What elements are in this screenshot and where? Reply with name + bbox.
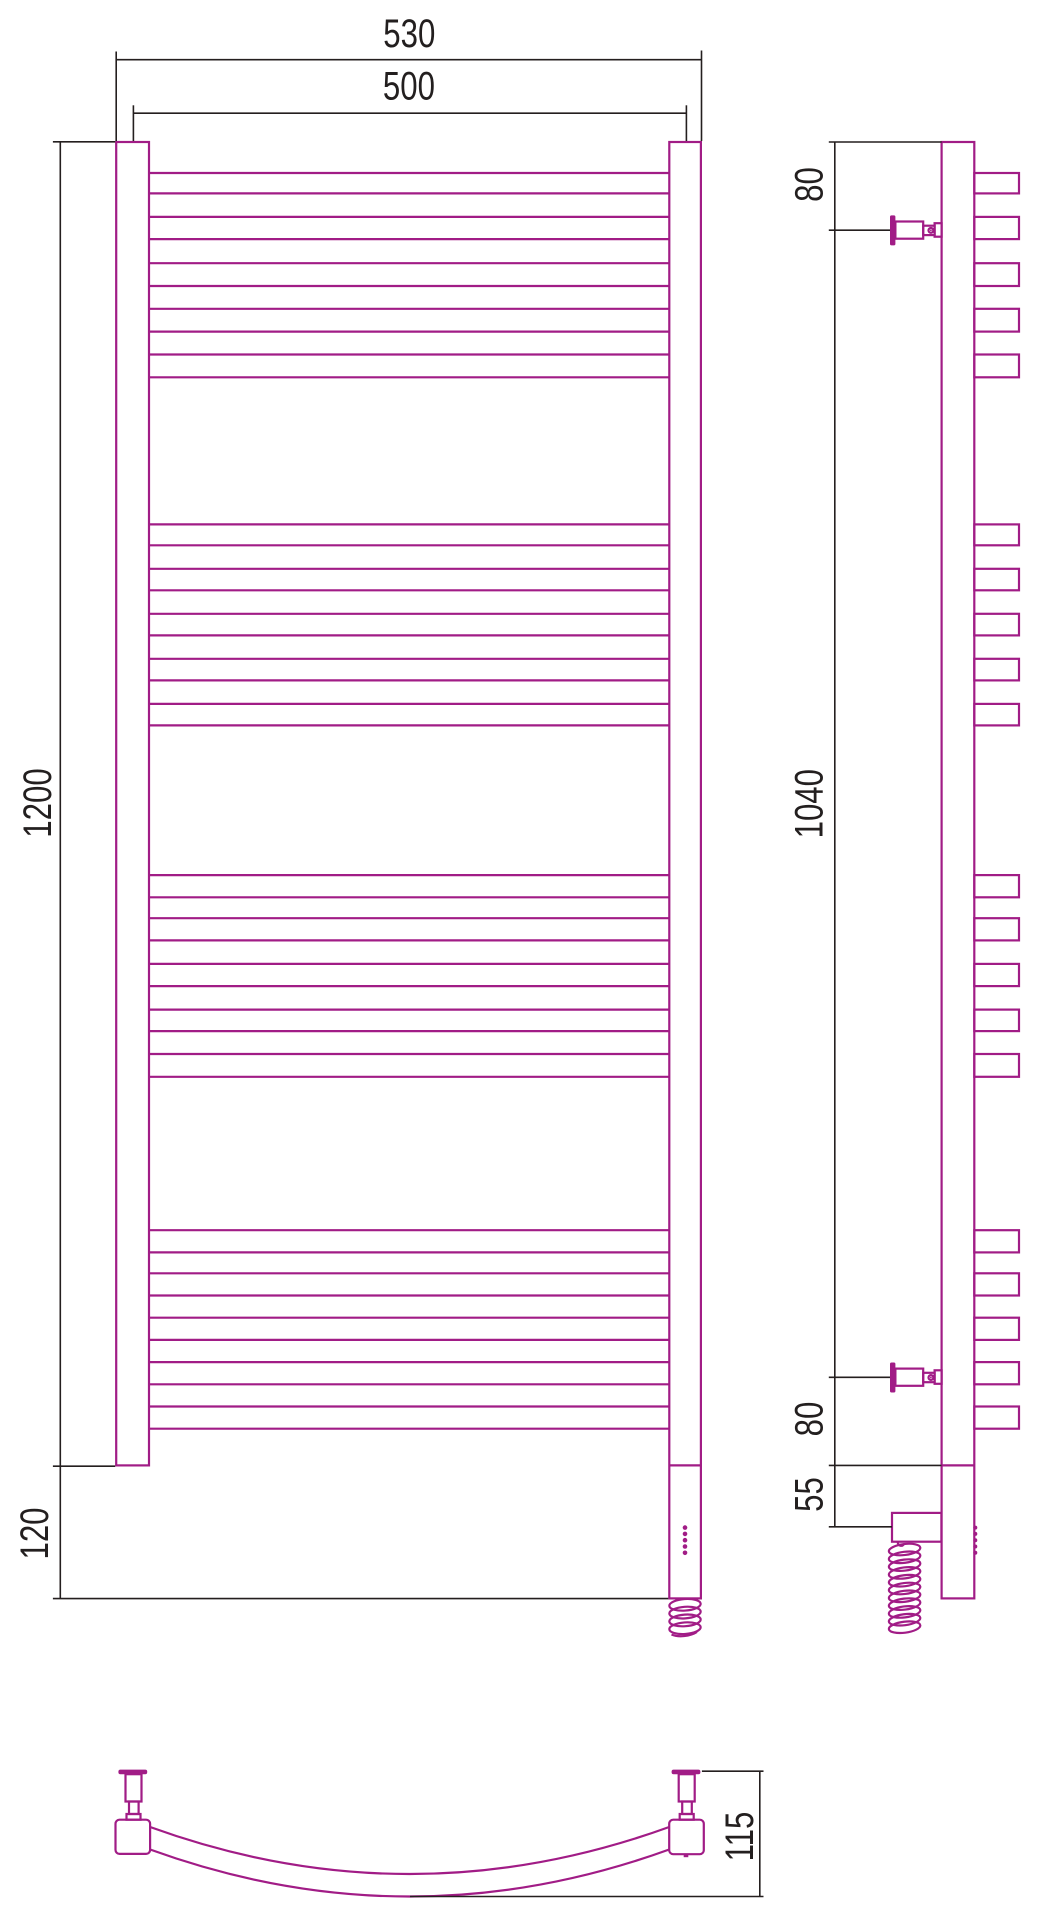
svg-text:500: 500 xyxy=(383,64,435,109)
svg-text:530: 530 xyxy=(383,12,435,57)
svg-text:115: 115 xyxy=(717,1812,762,1862)
svg-text:1200: 1200 xyxy=(15,768,60,837)
svg-text:120: 120 xyxy=(12,1507,57,1559)
svg-text:55: 55 xyxy=(787,1477,832,1512)
svg-text:80: 80 xyxy=(787,167,832,202)
svg-text:1040: 1040 xyxy=(787,769,832,838)
svg-text:80: 80 xyxy=(787,1402,832,1437)
